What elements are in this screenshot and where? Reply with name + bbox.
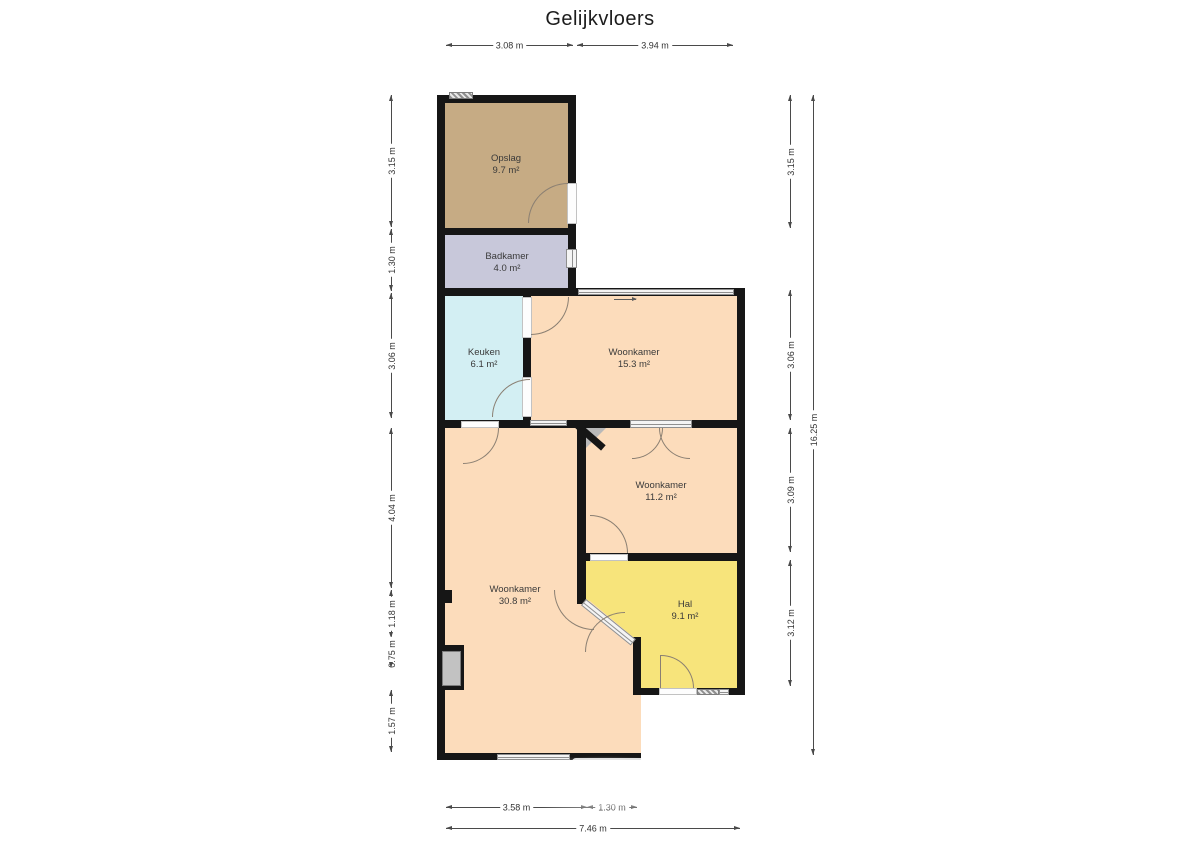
room-label-woonkamer-15: Woonkamer 15.3 m²	[589, 347, 679, 372]
watermark-box	[572, 758, 702, 796]
dim-top-2: 3.94 m	[577, 45, 733, 46]
dim-label: 3.06 m	[387, 339, 397, 373]
dim-left-6: 0.75 m	[391, 640, 392, 668]
room-area: 4.0 m²	[462, 263, 552, 275]
window	[497, 754, 570, 760]
glazed-double-door	[630, 420, 692, 428]
dim-label: 4.04 m	[387, 491, 397, 525]
page-title: Gelijkvloers	[0, 8, 1200, 31]
dim-label: 3.06 m	[786, 338, 796, 372]
room-name: Badkamer	[462, 251, 552, 263]
dim-label: 16.25 m	[809, 411, 819, 450]
wall	[437, 95, 445, 428]
dim-left-5: 1.18 m	[391, 590, 392, 638]
wall	[577, 420, 586, 604]
wall-stub	[445, 590, 452, 603]
dim-label: 3.15 m	[387, 144, 397, 178]
dim-right-total: 16.25 m	[813, 95, 814, 755]
dim-label: 3.12 m	[786, 606, 796, 640]
dim-label: 1.57 m	[387, 704, 397, 738]
door-leaf	[660, 655, 661, 688]
wall	[633, 637, 641, 695]
dim-label: 1.30 m	[387, 243, 397, 277]
room-area: 11.2 m²	[616, 492, 706, 504]
window-hatched	[697, 689, 719, 695]
dim-bottom-2: 1.30 m	[587, 807, 637, 808]
wall	[737, 288, 745, 428]
wall	[737, 428, 745, 695]
window	[566, 249, 577, 268]
window	[719, 689, 729, 695]
room-name: Opslag	[461, 153, 551, 165]
room-area: 9.7 m²	[461, 165, 551, 177]
dim-left-1: 3.15 m	[391, 95, 392, 227]
room-label-badkamer: Badkamer 4.0 m²	[462, 251, 552, 276]
dim-label: 1.30 m	[595, 803, 629, 813]
dim-right-1: 3.15 m	[790, 95, 791, 228]
room-name: Woonkamer	[616, 480, 706, 492]
dim-right-2: 3.06 m	[790, 290, 791, 420]
dim-left-2: 1.30 m	[391, 229, 392, 291]
dim-label: 3.94 m	[638, 41, 672, 51]
floorplan-canvas: Gelijkvloers	[0, 0, 1200, 849]
dim-label: 3.08 m	[493, 41, 527, 51]
vent-window	[449, 92, 473, 99]
window	[530, 420, 567, 426]
room-label-woonkamer-30: Woonkamer 30.8 m²	[470, 584, 560, 609]
room-area: 15.3 m²	[589, 359, 679, 371]
dim-label: 7.46 m	[576, 824, 610, 834]
window	[578, 289, 734, 295]
room-area: 6.1 m²	[439, 359, 529, 371]
dim-left-3: 3.06 m	[391, 293, 392, 418]
dim-left-4: 4.04 m	[391, 428, 392, 588]
room-label-woonkamer-11: Woonkamer 11.2 m²	[616, 480, 706, 505]
dim-bottom-1: 3.58 m	[446, 807, 587, 808]
dim-top-1: 3.08 m	[446, 45, 573, 46]
dim-label: 0.75 m	[387, 637, 397, 671]
door-gap	[590, 554, 628, 561]
room-name: Woonkamer	[470, 584, 560, 596]
dim-right-4: 3.12 m	[790, 560, 791, 686]
room-label-keuken: Keuken 6.1 m²	[439, 347, 529, 372]
door-gap	[567, 183, 577, 224]
room-area: 9.1 m²	[640, 611, 730, 623]
room-label-hal: Hal 9.1 m²	[640, 599, 730, 624]
room-name: Hal	[640, 599, 730, 611]
entry-door-gap	[659, 688, 697, 695]
door-gap	[461, 421, 499, 428]
dim-label: 1.18 m	[387, 597, 397, 631]
room-label-opslag: Opslag 9.7 m²	[461, 153, 551, 178]
dim-right-3: 3.09 m	[790, 428, 791, 552]
dim-left-7: 1.57 m	[391, 690, 392, 752]
sliding-window-arrow	[614, 299, 636, 300]
room-name: Woonkamer	[589, 347, 679, 359]
wall	[443, 228, 570, 235]
chimney-niche	[442, 651, 461, 686]
dim-bottom-total: 7.46 m	[446, 828, 740, 829]
dim-label: 3.09 m	[786, 473, 796, 507]
dim-label: 3.15 m	[786, 145, 796, 179]
room-area: 30.8 m²	[470, 596, 560, 608]
wall	[437, 428, 445, 760]
dim-label: 3.58 m	[500, 803, 534, 813]
room-name: Keuken	[439, 347, 529, 359]
